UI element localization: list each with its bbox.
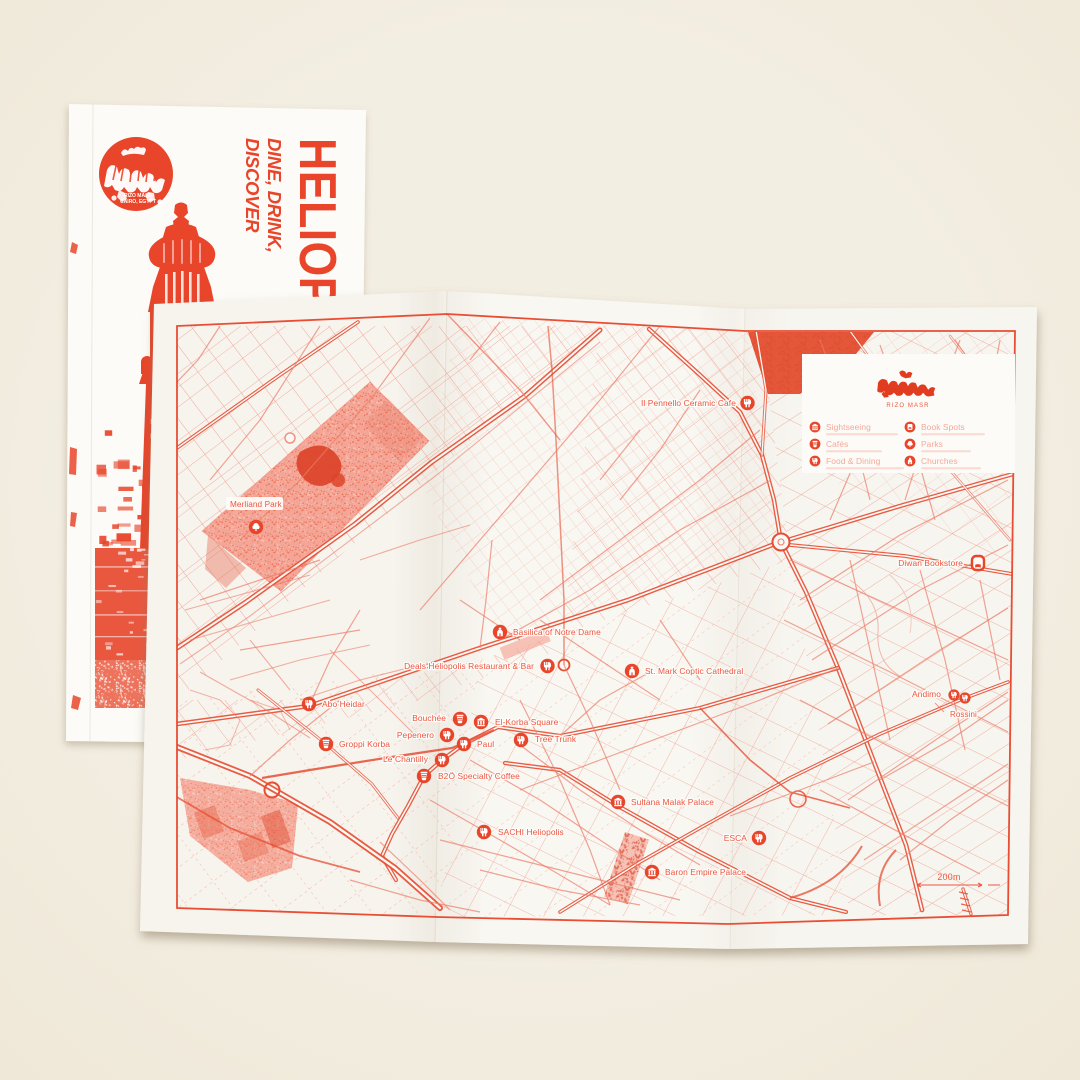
svg-text:Abo Heidar: Abo Heidar xyxy=(322,699,365,709)
svg-text:Parks: Parks xyxy=(921,439,943,449)
svg-text:Deals Heliopolis Restaurant &: Deals Heliopolis Restaurant & Bar xyxy=(404,661,534,671)
svg-text:B2Ö Specialty Coffee: B2Ö Specialty Coffee xyxy=(438,771,520,781)
svg-text:Andimo: Andimo xyxy=(912,689,941,699)
svg-text:Bouchée: Bouchée xyxy=(412,713,446,723)
svg-text:CAIRO, EGYPT: CAIRO, EGYPT xyxy=(120,199,156,205)
svg-text:DISCOVER: DISCOVER xyxy=(242,138,263,233)
svg-text:Diwan Bookstore: Diwan Bookstore xyxy=(898,558,963,568)
svg-text:200m: 200m xyxy=(937,872,960,882)
svg-text:St. Mark Coptic Cathedral: St. Mark Coptic Cathedral xyxy=(645,666,743,676)
svg-text:Basilica of Notre Dame: Basilica of Notre Dame xyxy=(513,627,601,637)
svg-text:Tree Trunk: Tree Trunk xyxy=(535,734,577,744)
svg-text:Paul: Paul xyxy=(477,739,494,749)
svg-text:Sultana Malak Palace: Sultana Malak Palace xyxy=(631,797,714,807)
svg-text:Churches: Churches xyxy=(921,456,958,466)
svg-text:Cafés: Cafés xyxy=(826,439,848,449)
svg-text:Pepenero: Pepenero xyxy=(397,730,434,740)
svg-text:ESCA: ESCA xyxy=(724,833,748,843)
svg-text:Le Chantilly: Le Chantilly xyxy=(383,754,429,764)
svg-text:DINE, DRINK,: DINE, DRINK, xyxy=(264,138,285,253)
svg-text:Rossini: Rossini xyxy=(950,710,977,719)
svg-text:Merliand Park: Merliand Park xyxy=(230,500,283,509)
svg-text:Book Spots: Book Spots xyxy=(921,422,965,432)
svg-text:Il Pennello Ceramic Cafe: Il Pennello Ceramic Cafe xyxy=(641,398,736,408)
svg-text:Groppi Korba: Groppi Korba xyxy=(339,739,390,749)
svg-text:Baron Empire Palace: Baron Empire Palace xyxy=(665,867,746,877)
svg-text:El-Korba Square: El-Korba Square xyxy=(495,717,559,727)
svg-text:Sightseeing: Sightseeing xyxy=(826,422,871,432)
svg-text:SACHI Heliopolis: SACHI Heliopolis xyxy=(498,827,564,837)
svg-text:RIZO MASR: RIZO MASR xyxy=(886,403,929,409)
svg-text:Food & Dining: Food & Dining xyxy=(826,456,881,466)
